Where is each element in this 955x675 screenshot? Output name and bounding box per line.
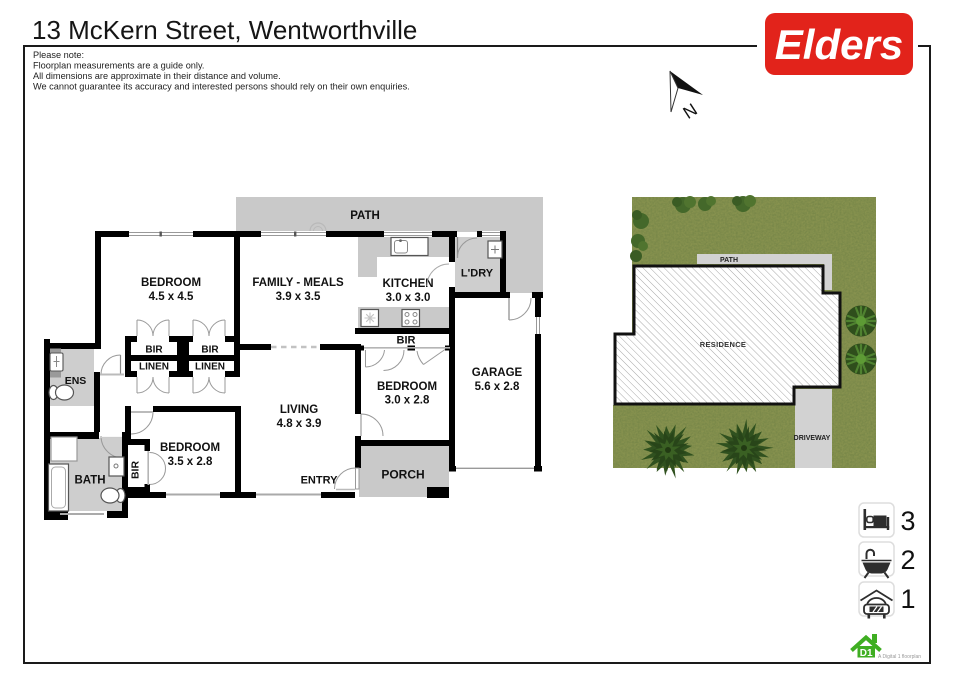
svg-text:A Digital 1 floorplan: A Digital 1 floorplan <box>878 654 921 660</box>
svg-text:3.0 x 2.8: 3.0 x 2.8 <box>385 395 430 407</box>
svg-text:4.8 x 3.9: 4.8 x 3.9 <box>277 418 322 430</box>
svg-text:D1: D1 <box>860 648 873 659</box>
svg-text:BATH: BATH <box>74 475 105 487</box>
svg-text:PATH: PATH <box>720 257 738 264</box>
svg-text:BIR: BIR <box>145 345 163 356</box>
svg-text:1: 1 <box>900 584 915 614</box>
svg-text:RESIDENCE: RESIDENCE <box>700 340 746 349</box>
svg-text:ENTRY: ENTRY <box>301 475 339 487</box>
svg-text:GARAGE: GARAGE <box>472 367 523 379</box>
svg-text:KITCHEN: KITCHEN <box>382 278 433 290</box>
svg-text:Please note:: Please note: <box>33 50 84 60</box>
svg-text:BEDROOM: BEDROOM <box>377 381 437 393</box>
svg-text:3: 3 <box>900 506 915 536</box>
svg-text:LINEN: LINEN <box>139 362 169 373</box>
svg-text:13 McKern Street, Wentworthvil: 13 McKern Street, Wentworthville <box>32 15 417 45</box>
svg-text:BIR: BIR <box>201 345 219 356</box>
svg-text:5.6 x 2.8: 5.6 x 2.8 <box>475 381 520 393</box>
svg-text:FAMILY - MEALS: FAMILY - MEALS <box>252 277 344 289</box>
svg-text:Floorplan measurements are a g: Floorplan measurements are a guide only. <box>33 61 204 71</box>
svg-text:PORCH: PORCH <box>381 468 424 482</box>
svg-text:BIR: BIR <box>397 335 416 347</box>
svg-text:3.5 x 2.8: 3.5 x 2.8 <box>168 456 213 468</box>
svg-text:BEDROOM: BEDROOM <box>141 277 201 289</box>
svg-text:DRIVEWAY: DRIVEWAY <box>794 435 831 442</box>
svg-text:All dimensions are approximate: All dimensions are approximate in their … <box>33 71 281 81</box>
svg-text:2: 2 <box>900 545 915 575</box>
svg-text:LINEN: LINEN <box>195 362 225 373</box>
svg-text:Elders: Elders <box>775 21 903 68</box>
svg-text:We cannot guarantee its accura: We cannot guarantee its accuracy and int… <box>33 82 410 92</box>
svg-text:3.0 x 3.0: 3.0 x 3.0 <box>386 292 431 304</box>
svg-text:BEDROOM: BEDROOM <box>160 442 220 454</box>
svg-text:L'DRY: L'DRY <box>461 268 494 280</box>
svg-text:LIVING: LIVING <box>280 404 318 416</box>
svg-text:PATH: PATH <box>350 210 380 222</box>
svg-text:BIR: BIR <box>130 461 142 480</box>
svg-text:3.9 x 3.5: 3.9 x 3.5 <box>276 291 321 303</box>
svg-text:4.5 x 4.5: 4.5 x 4.5 <box>149 291 194 303</box>
